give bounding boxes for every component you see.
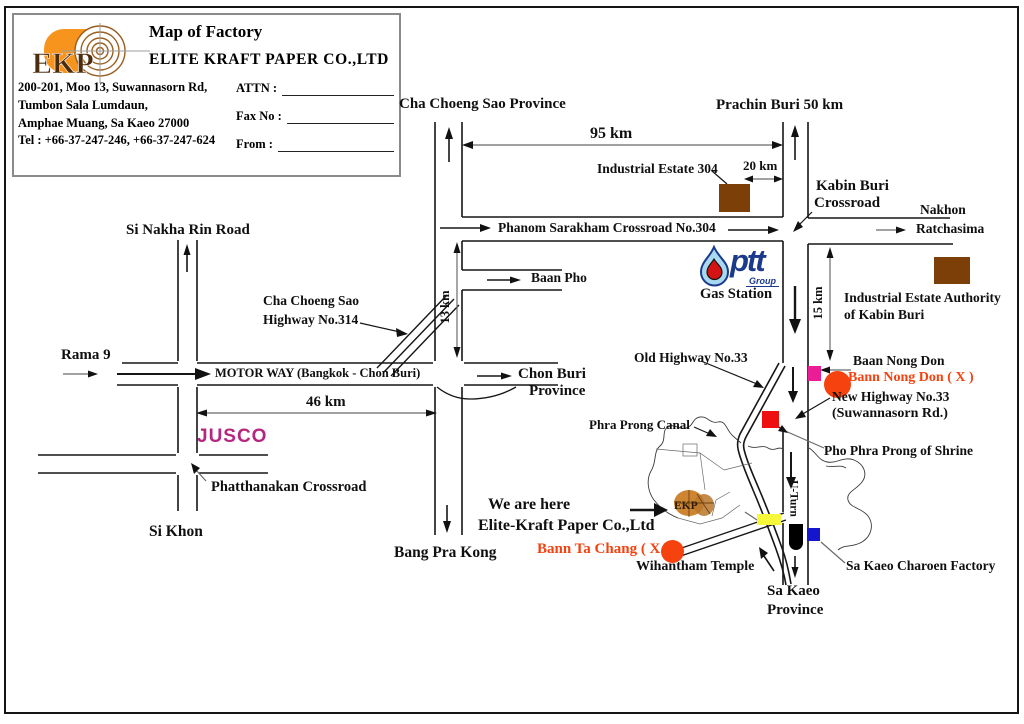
label-si-nakha-rin-road: Si Nakha Rin Road — [126, 222, 250, 239]
label-bann-ta-chang-x: Bann Ta Chang ( X ) — [537, 541, 669, 558]
label-chon-buri-province: Chon Buri Province — [518, 366, 586, 400]
map-title: Map of Factory — [149, 22, 262, 42]
label-wihantham-temple: Wihantham Temple — [636, 559, 754, 575]
label-46km: 46 km — [306, 394, 346, 411]
label-we-are-here: We are here Elite-Kraft Paper Co.,Ltd — [488, 496, 655, 535]
baan-nong-don-marker — [808, 366, 821, 381]
from-blank-line — [278, 137, 394, 152]
label-prachin-buri: Prachin Buri 50 km — [716, 97, 843, 114]
label-95km: 95 km — [590, 125, 632, 143]
fax-label: Fax No : — [236, 109, 282, 124]
label-pho-phra-prong-shrine: Pho Phra Prong of Shrine — [824, 443, 973, 458]
label-bann-nong-don-x: Bann Nong Don ( X ) — [848, 370, 974, 386]
label-u-turn: U-Turn — [787, 476, 800, 520]
ekp-logo: EKP — [32, 23, 162, 85]
industrial-estate-authority-marker — [934, 257, 970, 284]
label-cha-choeng-sao-province: Cha Choeng Sao Province — [399, 96, 566, 113]
label-new-highway-33: New Highway No.33 (Suwannasorn Rd.) — [832, 389, 949, 422]
pho-phra-prong-shrine-marker — [762, 411, 779, 428]
label-phatthanakan-crossroad: Phatthanakan Crossroad — [211, 479, 366, 495]
ptt-flame-icon — [701, 247, 728, 286]
label-15km: 15 km — [811, 281, 825, 325]
sa-kaeo-charoen-factory-marker — [807, 528, 820, 541]
label-sa-kaeo-province: Sa Kaeo Province — [767, 583, 823, 619]
label-baan-pho: Baan Pho — [531, 270, 587, 285]
fax-blank-line — [287, 109, 394, 124]
company-address: 200-201, Moo 13, Suwannasorn Rd, Tumbon … — [18, 79, 215, 150]
label-cha-choeng-highway-314: Cha Choeng Sao Highway No.314 — [263, 293, 359, 327]
fax-form: ATTN : Fax No : From : — [236, 81, 394, 165]
label-kabin-buri-crossroad: Kabin Buri Crossroad — [816, 178, 889, 212]
industrial-estate-304-marker — [719, 184, 750, 212]
ekp-logo-text: EKP — [32, 47, 94, 80]
jusco-logo: JUSCO — [197, 426, 267, 448]
label-motorway: MOTOR WAY (Bangkok - Chon Buri) — [215, 366, 420, 380]
from-label: From : — [236, 137, 273, 152]
label-baan-nong-don: Baan Nong Don — [853, 353, 945, 368]
label-old-highway-33: Old Highway No.33 — [634, 350, 748, 365]
label-industrial-estate-authority: Industrial Estate Authority of Kabin Bur… — [844, 290, 1001, 322]
label-nakhon-ratchasima: Nakhon Ratchasima — [920, 202, 984, 236]
label-bang-pra-kong: Bang Pra Kong — [394, 544, 496, 561]
label-gas-station: Gas Station — [700, 286, 772, 302]
header-box: EKP Map of Factory ELITE KRAFT PAPER CO.… — [12, 13, 401, 177]
ptt-logo-text: ptt — [730, 243, 764, 279]
attn-blank-line — [282, 81, 394, 96]
label-phra-prong-canal: Phra Prong Canal — [589, 418, 690, 433]
label-sa-kaeo-charoen-factory: Sa Kaeo Charoen Factory — [846, 558, 995, 573]
label-industrial-estate-304: Industrial Estate 304 — [597, 161, 718, 176]
attn-label: ATTN : — [236, 81, 277, 96]
label-si-khon: Si Khon — [149, 523, 203, 540]
wihantham-temple-marker — [757, 514, 781, 525]
company-name: ELITE KRAFT PAPER CO.,LTD — [149, 51, 389, 69]
label-rama-9: Rama 9 — [61, 347, 111, 364]
factory-map-page: EKP Map of Factory ELITE KRAFT PAPER CO.… — [0, 0, 1024, 724]
label-phanom-sarakham: Phanom Sarakham Crossroad No.304 — [498, 220, 716, 235]
u-turn-symbol — [789, 524, 803, 550]
label-20km: 20 km — [743, 159, 777, 174]
label-13km: 13 km — [438, 285, 452, 329]
label-ekp-site: EKP — [674, 500, 698, 512]
